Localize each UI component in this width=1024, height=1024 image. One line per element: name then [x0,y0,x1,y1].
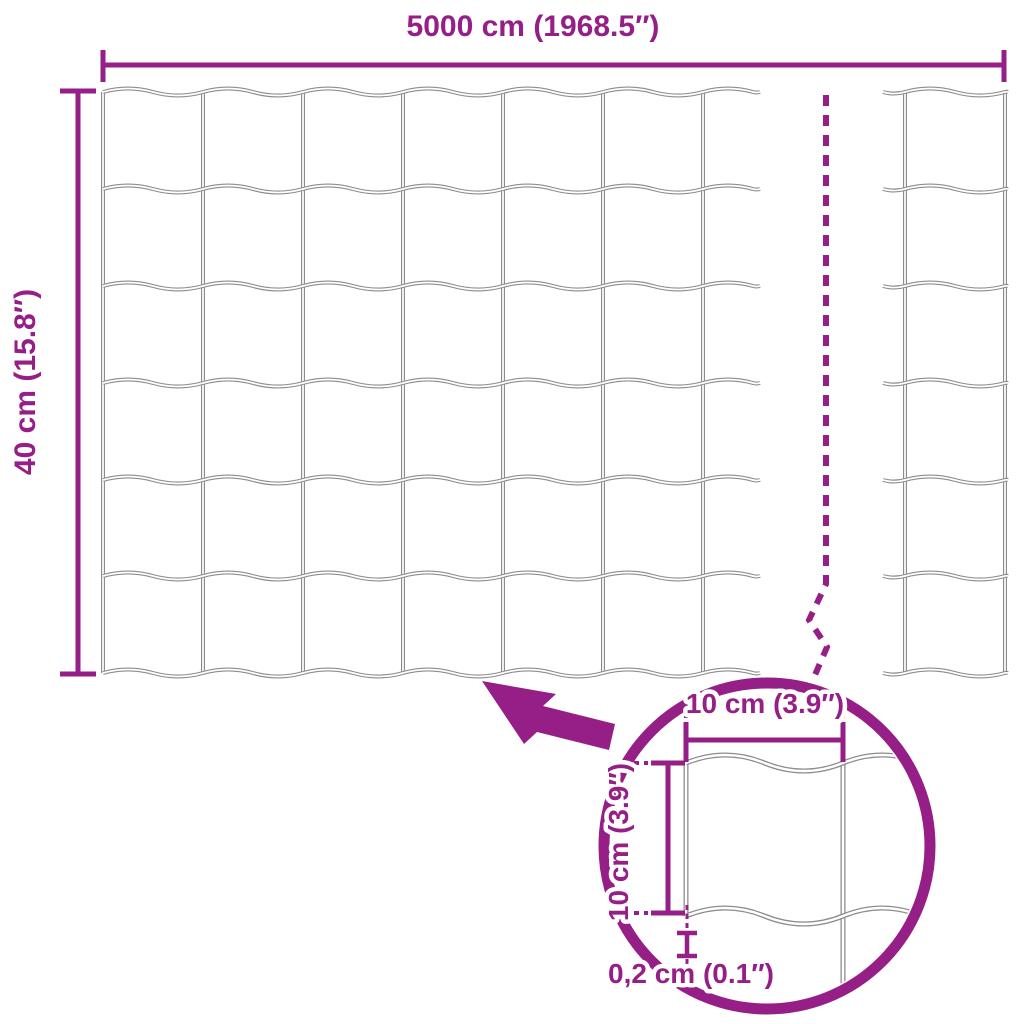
width-dimension: 5000 cm (1968.5″) [103,10,1004,82]
mesh-grid [103,89,1008,677]
height-dimension: 40 cm (15.8″) [9,91,96,674]
height-dimension-label: 40 cm (15.8″) [9,289,42,475]
break-line [809,95,827,682]
width-dimension-line [103,50,1004,82]
width-dimension-label: 5000 cm (1968.5″) [407,10,660,43]
height-dimension-line [60,91,96,674]
magnifier-arrow-icon [482,681,615,750]
diagram-canvas: 5000 cm (1968.5″) 40 cm (15.8″) 10 cm (3… [0,0,1024,1024]
detail-width-label: 10 cm (3.9″) [686,688,844,719]
wire-thickness-label: 0,2 cm (0.1″) [608,958,774,989]
detail-circle: 10 cm (3.9″) 10 cm (3.9″) 0,2 cm (0.1″) [603,683,934,1009]
detail-height-label: 10 cm (3.9″) [603,763,634,921]
product-dimension-diagram: 5000 cm (1968.5″) 40 cm (15.8″) 10 cm (3… [0,0,1024,1024]
